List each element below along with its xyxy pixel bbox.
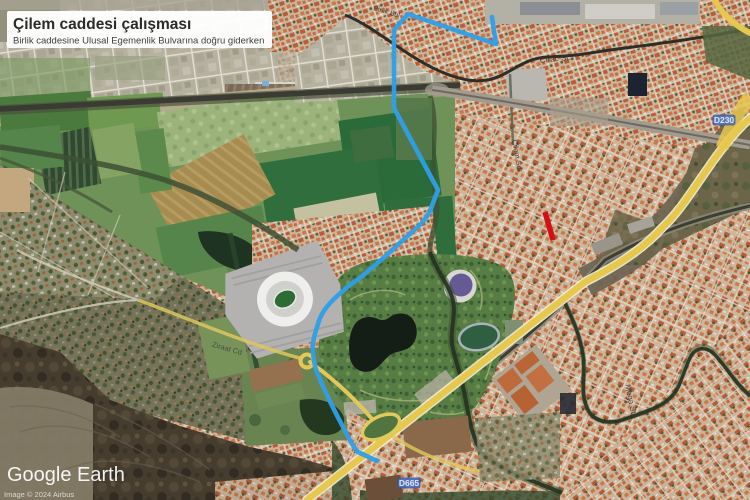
svg-text:D665: D665 bbox=[399, 478, 420, 488]
svg-text:Çilem caddesi çalışması: Çilem caddesi çalışması bbox=[13, 16, 191, 33]
svg-text:D230: D230 bbox=[714, 115, 735, 125]
svg-text:Image © 2024 Airbus: Image © 2024 Airbus bbox=[4, 490, 74, 499]
svg-text:Birlik caddesine Ulusal Egemen: Birlik caddesine Ulusal Egemenlik Bulvar… bbox=[13, 36, 264, 47]
svg-text:Google Earth: Google Earth bbox=[7, 464, 125, 486]
